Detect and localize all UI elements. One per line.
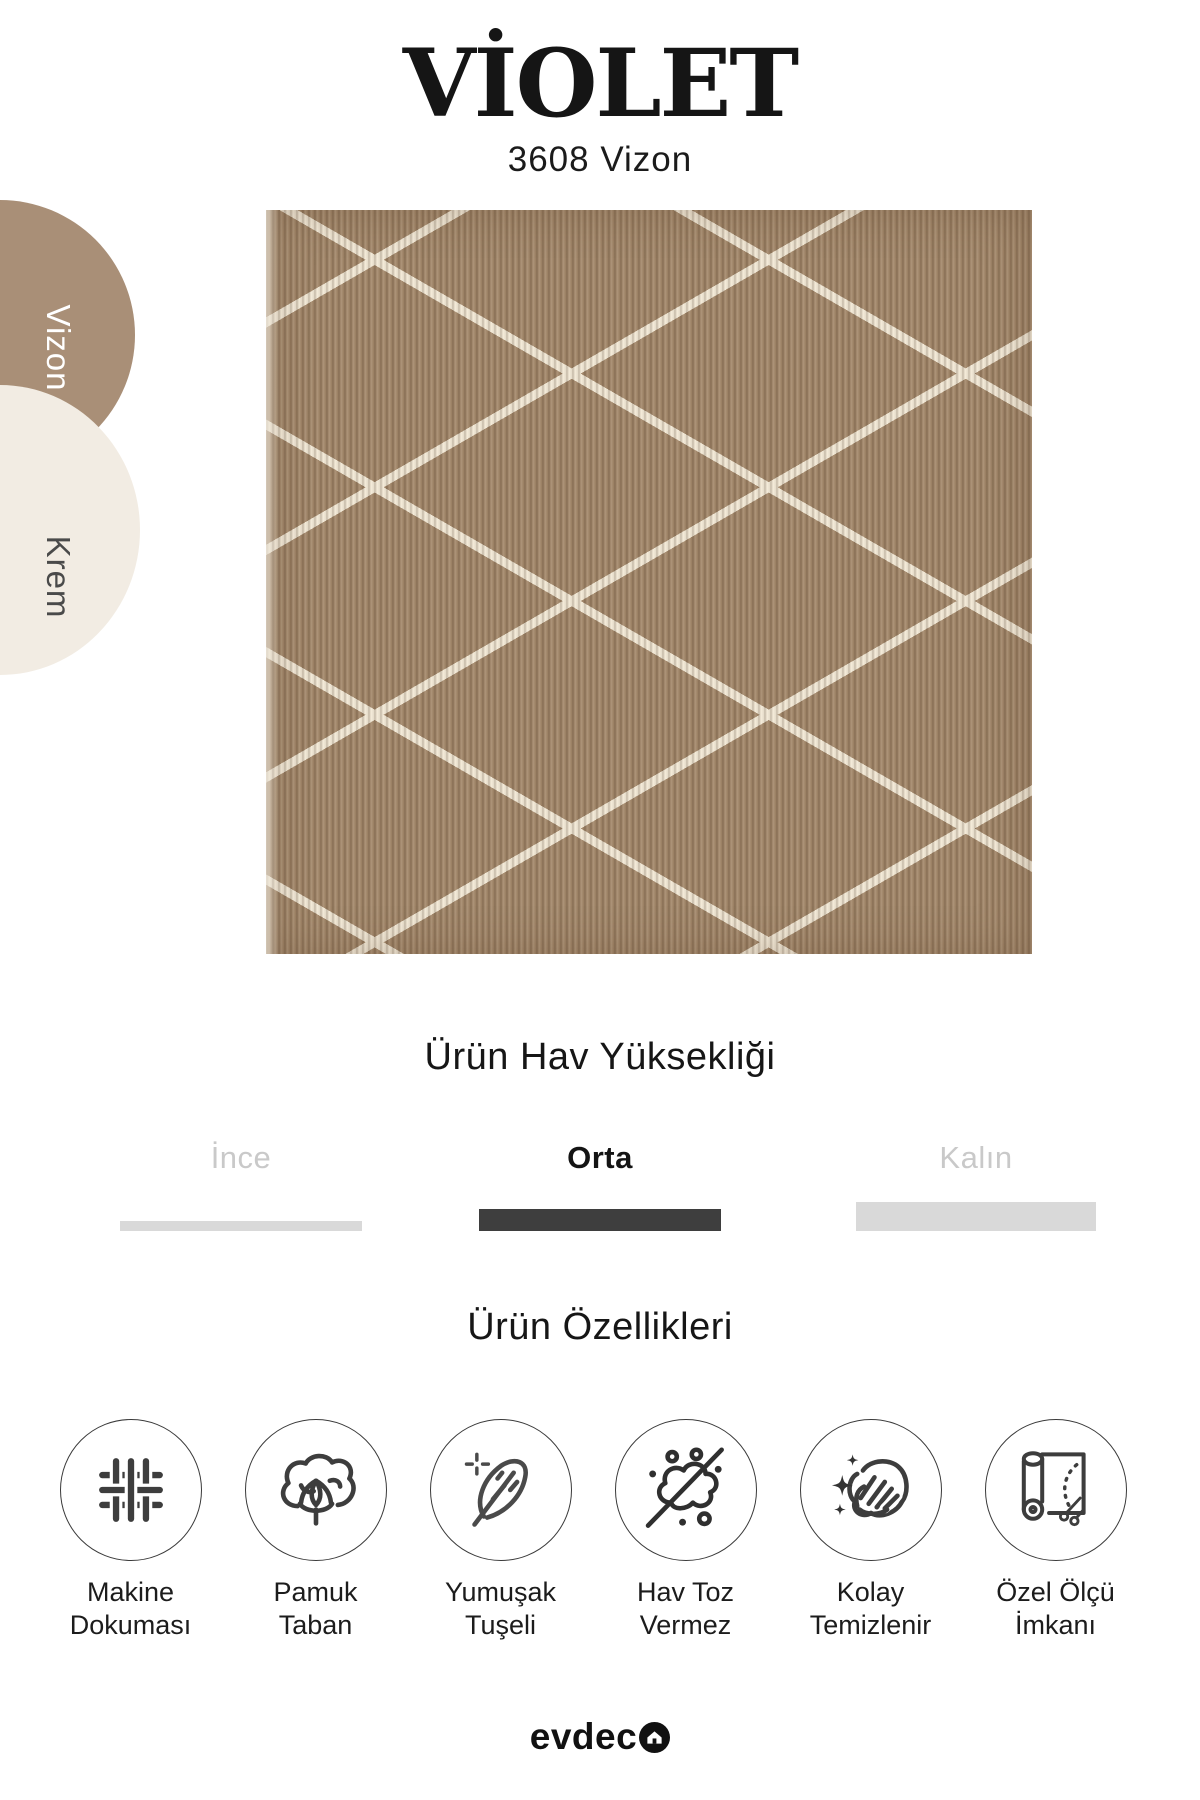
feature-label: Makine Dokuması <box>70 1576 192 1642</box>
color-swatch-label: Krem <box>39 536 77 619</box>
color-swatch-krem[interactable]: Krem <box>0 385 140 675</box>
feature-hav-toz-vermez: Hav Toz Vermez <box>593 1419 778 1642</box>
feature-label: Özel Ölçü İmkanı <box>996 1576 1115 1642</box>
feature-ozel-olcu-imkani: Özel Ölçü İmkanı <box>963 1419 1148 1642</box>
product-variant: 3608 Vizon <box>0 140 1200 180</box>
pile-thickness-bar <box>479 1209 721 1231</box>
evdeco-logo: evdec <box>0 1716 1200 1758</box>
color-swatch-label: Vizon <box>39 305 77 392</box>
logo-text: evdec <box>530 1716 637 1758</box>
cotton-icon <box>245 1419 387 1561</box>
custom-size-icon <box>985 1419 1127 1561</box>
easy-clean-icon <box>800 1419 942 1561</box>
product-title: VİOLET <box>0 28 1200 140</box>
pile-thickness-bar <box>120 1221 362 1231</box>
feature-makine-dokumasi: Makine Dokuması <box>38 1419 223 1642</box>
feature-label: Pamuk Taban <box>273 1576 357 1642</box>
feature-pamuk-taban: Pamuk Taban <box>223 1419 408 1642</box>
feather-icon <box>430 1419 572 1561</box>
feature-yumusak-tuseli: Yumuşak Tuşeli <box>408 1419 593 1642</box>
features-title: Ürün Özellikleri <box>0 1306 1200 1349</box>
weave-icon <box>60 1419 202 1561</box>
product-card: VİOLET 3608 Vizon Vizon Krem Ürün Hav Yü… <box>0 0 1200 1800</box>
pile-option-label: Orta <box>567 1140 633 1176</box>
house-icon <box>639 1722 670 1753</box>
dust-free-icon <box>615 1419 757 1561</box>
pile-option-label: İnce <box>211 1140 272 1176</box>
pile-option-kalin[interactable]: Kalın <box>856 1140 1096 1231</box>
rug-product-image <box>266 210 1032 954</box>
feature-label: Yumuşak Tuşeli <box>445 1576 556 1642</box>
feature-kolay-temizlenir: Kolay Temizlenir <box>778 1419 963 1642</box>
feature-label: Kolay Temizlenir <box>810 1576 932 1642</box>
feature-label: Hav Toz Vermez <box>637 1576 734 1642</box>
pile-option-ince[interactable]: İnce <box>120 1140 362 1231</box>
pile-height-title: Ürün Hav Yüksekliği <box>0 1036 1200 1079</box>
pile-thickness-bar <box>856 1202 1096 1231</box>
pile-option-orta[interactable]: Orta <box>479 1140 721 1231</box>
pile-option-label: Kalın <box>939 1140 1012 1176</box>
features-row: Makine Dokuması Pamuk Taban <box>38 1419 1148 1642</box>
